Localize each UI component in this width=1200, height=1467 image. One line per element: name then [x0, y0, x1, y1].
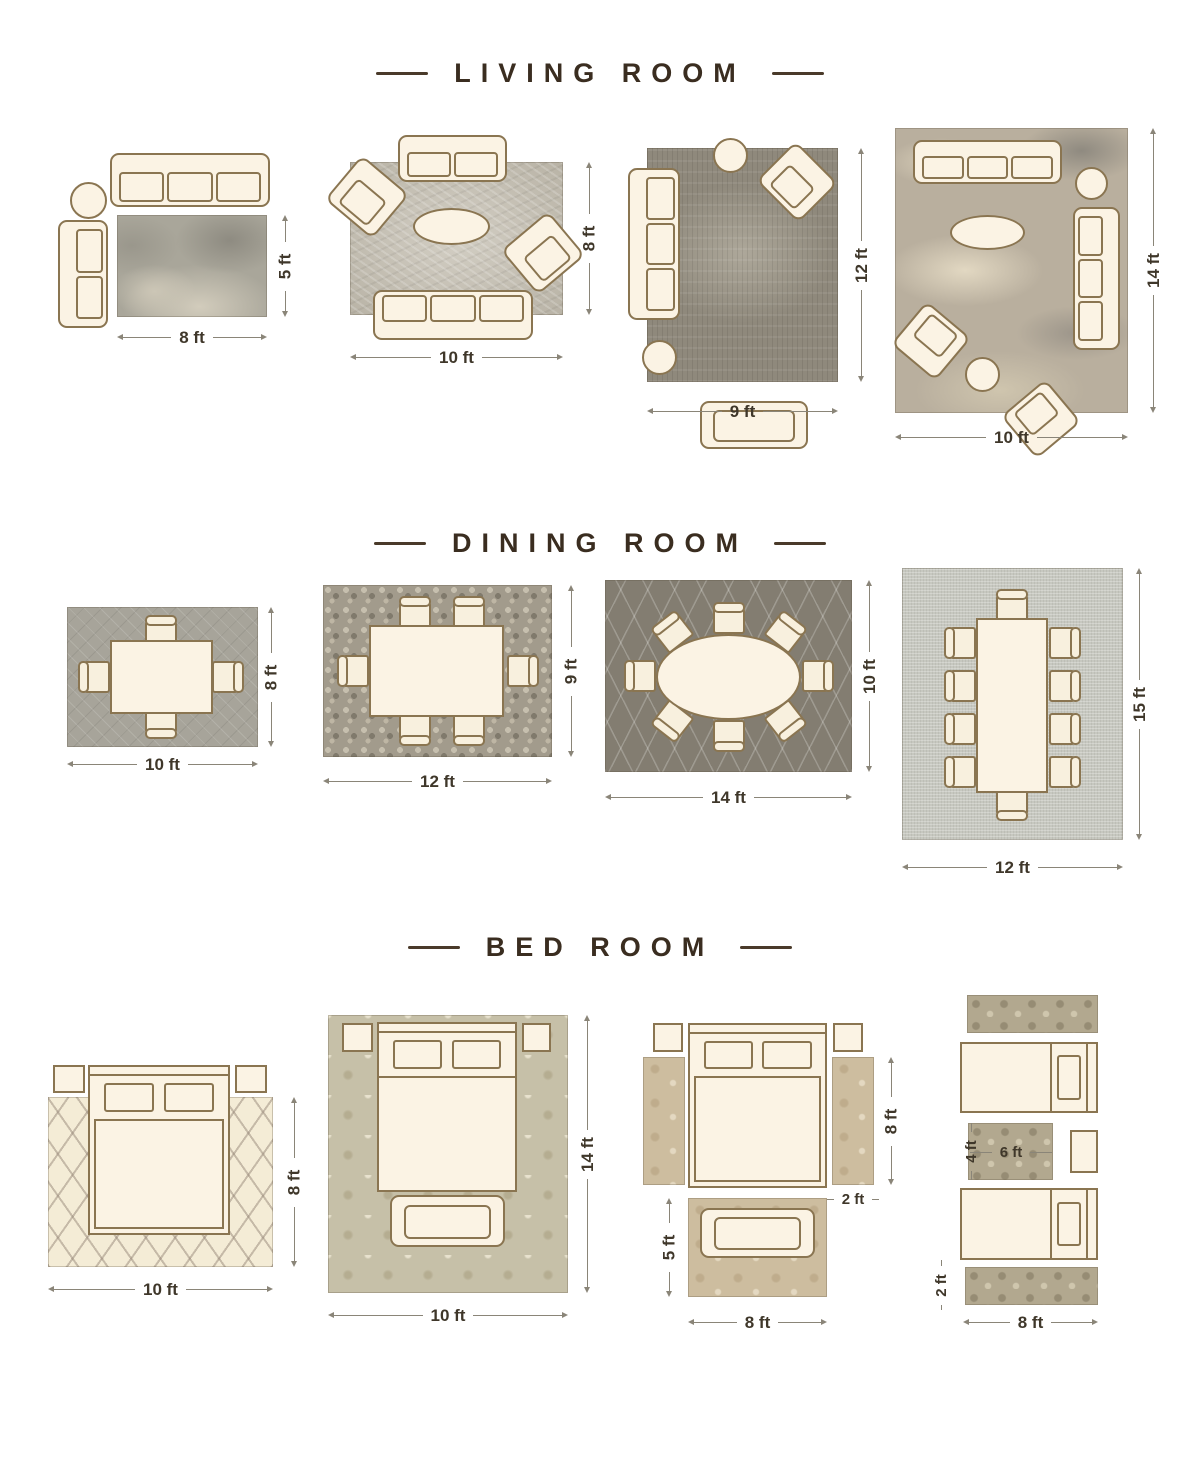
accent-rug-height-label: 5 ft: [661, 1235, 678, 1261]
runner-width-label: 2 ft: [834, 1192, 873, 1207]
dining-chair: [1049, 713, 1075, 745]
rug-height-dimension: 8 ft: [285, 1097, 303, 1267]
arrow-right-icon: [252, 761, 258, 767]
title-dash-left: [376, 72, 428, 75]
dining-room-layout-1: 8 ft 10 ft: [60, 595, 295, 785]
dining-table: [110, 640, 213, 714]
rug-width-label: 10 ft: [431, 349, 482, 366]
sofa-cushion: [382, 295, 427, 322]
nightstand: [653, 1023, 683, 1052]
rug-height-label: 12 ft: [853, 248, 870, 283]
sofa: [1073, 207, 1120, 350]
rug-height-dimension: 8 ft: [580, 162, 598, 315]
rug-width-label: 12 ft: [987, 859, 1038, 876]
dining-chair: [399, 714, 431, 740]
bed-blanket: [94, 1119, 224, 1229]
bench-cushion: [714, 1217, 801, 1250]
sofa: [913, 140, 1062, 184]
nightstand: [833, 1023, 863, 1052]
dining-chair: [950, 756, 976, 788]
headboard: [90, 1067, 228, 1076]
arrow-down-icon: [568, 751, 574, 757]
headboard: [1088, 1044, 1096, 1111]
runner-rug: [832, 1057, 874, 1185]
rug-height-dimension: 8 ft: [262, 607, 280, 747]
sofa-cushion: [479, 295, 524, 322]
arrow-right-icon: [832, 408, 838, 414]
nightstand: [53, 1065, 85, 1093]
arrow-right-icon: [261, 334, 267, 340]
sofa-cushion: [119, 172, 164, 202]
dining-chair: [802, 660, 828, 692]
rug-width-dimension: 9 ft: [647, 402, 838, 420]
rug-width-label: 14 ft: [703, 789, 754, 806]
bed-room-layout-1: 8 ft 10 ft: [40, 1060, 310, 1305]
armchair-seat: [337, 178, 387, 227]
arrow-down-icon: [268, 741, 274, 747]
dining-chair: [507, 655, 533, 687]
dining-chair: [1049, 670, 1075, 702]
sofa-back: [630, 170, 644, 318]
rug-width-label: 10 ft: [986, 429, 1037, 446]
rug-size-guide: LIVING ROOM 5 ft 8 f: [0, 0, 1200, 1467]
rug-width-label: 10 ft: [137, 756, 188, 773]
rug-width-dimension: 12 ft: [323, 772, 552, 790]
bed-room-layout-2: 14 ft 10 ft: [328, 1010, 603, 1325]
bed-room-layout-3: 8 ft 2 ft 5 ft 8 ft: [643, 1020, 908, 1335]
rug-height-label: 8 ft: [581, 226, 598, 252]
accent-rug-width-label: 6 ft: [992, 1145, 1031, 1160]
rug-height-label: 14 ft: [579, 1137, 596, 1172]
dining-room-layout-4: 15 ft 12 ft: [902, 565, 1162, 880]
coffee-table: [950, 215, 1025, 250]
headboard: [1088, 1190, 1096, 1258]
arrow-right-icon: [821, 1319, 827, 1325]
sofa-back: [915, 142, 1060, 154]
bed-blanket: [962, 1044, 1052, 1111]
bed-pillow: [104, 1083, 154, 1112]
bed-pillow: [393, 1040, 443, 1069]
twin-bed: [960, 1188, 1098, 1260]
armchair-seat: [523, 234, 573, 283]
side-table: [1075, 167, 1108, 200]
rug-width-label: 9 ft: [722, 403, 764, 420]
side-table: [70, 182, 107, 219]
rug-height-dimension: 14 ft: [578, 1015, 596, 1293]
sofa-cushion: [430, 295, 475, 322]
dining-chair: [1049, 756, 1075, 788]
rug-width-label: 8 ft: [171, 329, 213, 346]
runner-rug: [965, 1267, 1098, 1305]
headboard: [690, 1025, 825, 1034]
accent-rug-width-label: 8 ft: [737, 1314, 779, 1331]
title-dash-left: [374, 542, 426, 545]
nightstand: [342, 1023, 373, 1052]
side-table: [713, 138, 748, 173]
sofa: [110, 153, 270, 207]
dining-chair: [713, 608, 745, 634]
rug-height-label: 8 ft: [263, 664, 280, 690]
dining-chair: [453, 714, 485, 740]
dining-chair: [950, 670, 976, 702]
dining-chair: [713, 720, 745, 746]
loveseat: [58, 220, 108, 328]
sofa-cushion: [922, 156, 964, 179]
sofa-cushion: [1078, 259, 1103, 299]
sofa-back: [60, 222, 74, 326]
living-room-layout-1: 5 ft 8 ft: [50, 130, 310, 370]
arrow-right-icon: [562, 1312, 568, 1318]
dining-table: [369, 625, 504, 717]
runner-width-dimension: 2 ft: [932, 1260, 950, 1310]
rug-height-label: 15 ft: [1131, 687, 1148, 722]
runner-rug: [967, 995, 1098, 1033]
loveseat: [398, 135, 507, 182]
runner-width-label: 2 ft: [934, 1274, 949, 1297]
rug-height-dimension: 10 ft: [860, 580, 878, 772]
bed-blanket: [694, 1076, 821, 1182]
rug-height-dimension: 5 ft: [276, 215, 294, 317]
nightstand: [522, 1023, 551, 1052]
title-dash-right: [772, 72, 824, 75]
sofa-cushion: [1011, 156, 1053, 179]
sofa-cushion: [646, 223, 675, 266]
sofa-cushion: [646, 268, 675, 311]
arrow-right-icon: [546, 778, 552, 784]
bed-room-section-title: BED ROOM: [0, 932, 1200, 963]
coffee-table: [413, 208, 490, 245]
arrow-down-icon: [282, 311, 288, 317]
runner-length-dimension: 8 ft: [882, 1057, 900, 1185]
rug-width-label: 10 ft: [135, 1281, 186, 1298]
bed-blanket: [962, 1190, 1052, 1258]
dining-chair: [630, 660, 656, 692]
rug-width-dimension: 10 ft: [67, 755, 258, 773]
nightstand: [1070, 1130, 1098, 1173]
dining-table: [976, 618, 1048, 793]
rug-height-dimension: 9 ft: [562, 585, 580, 757]
sofa-cushion: [454, 152, 498, 177]
sofa-cushion: [76, 229, 103, 273]
runner-width-dimension: 2 ft: [827, 1190, 879, 1208]
arrow-down-icon: [586, 309, 592, 315]
arrow-right-icon: [1092, 1319, 1098, 1325]
rug-height-label: 10 ft: [861, 659, 878, 694]
runner-rug: [643, 1057, 685, 1185]
rug-width-dimension: 10 ft: [350, 348, 563, 366]
runner-length-dimension: 8 ft: [963, 1313, 1098, 1331]
arrow-down-icon: [866, 766, 872, 772]
sofa-back: [1105, 209, 1118, 348]
rug-width-dimension: 8 ft: [117, 328, 267, 346]
sofa: [628, 168, 680, 320]
arrow-down-icon: [1136, 834, 1142, 840]
section-title-text: DINING ROOM: [452, 528, 748, 559]
bed-pillow: [762, 1041, 811, 1069]
rug-height-dimension: 15 ft: [1130, 568, 1148, 840]
accent-rug-height-dimension: 5 ft: [660, 1198, 678, 1297]
arrow-right-icon: [1117, 864, 1123, 870]
runner-length-label: 8 ft: [883, 1108, 900, 1134]
rug-height-label: 9 ft: [563, 658, 580, 684]
arrow-down-icon: [1150, 407, 1156, 413]
rug-width-dimension: 10 ft: [328, 1306, 568, 1324]
section-title-text: LIVING ROOM: [454, 58, 746, 89]
headboard: [379, 1024, 515, 1033]
living-room-layout-4: 14 ft 10 ft: [885, 110, 1180, 455]
title-dash-right: [740, 946, 792, 949]
bench: [390, 1195, 505, 1247]
runner-length-label: 8 ft: [1010, 1314, 1052, 1331]
dining-chair: [1049, 627, 1075, 659]
arrow-down-icon: [291, 1261, 297, 1267]
arrow-right-icon: [557, 354, 563, 360]
sofa-cushion: [967, 156, 1009, 179]
bed: [88, 1065, 230, 1235]
bed-pillow: [452, 1040, 502, 1069]
arrow-right-icon: [846, 794, 852, 800]
dining-chair: [950, 713, 976, 745]
bed-pillow-area: [1052, 1190, 1088, 1258]
area-rug: [117, 215, 267, 317]
rug-height-label: 8 ft: [286, 1169, 303, 1195]
bed-pillow: [1057, 1055, 1082, 1099]
bed-room-layout-4: 4 ft 6 ft 2 ft 8 ft: [930, 985, 1185, 1335]
accent-rug-width-dimension: 8 ft: [688, 1313, 827, 1331]
rug-height-label: 14 ft: [1145, 253, 1162, 288]
arrow-down-icon: [666, 1291, 672, 1297]
sofa: [373, 290, 533, 340]
dining-chair: [84, 661, 110, 693]
rug-width-label: 12 ft: [412, 773, 463, 790]
rug-height-dimension: 14 ft: [1144, 128, 1162, 413]
bench: [700, 1208, 815, 1258]
bed-pillow: [704, 1041, 753, 1069]
sofa-cushion: [76, 276, 103, 320]
rug-height-label: 5 ft: [277, 253, 294, 279]
rug-height-dimension: 12 ft: [852, 148, 870, 382]
sofa-cushion: [407, 152, 451, 177]
sofa-cushion: [1078, 301, 1103, 341]
living-room-layout-3: 12 ft 9 ft: [615, 130, 885, 430]
bench-cushion: [404, 1205, 491, 1240]
sofa-cushion: [1078, 216, 1103, 256]
dining-room-layout-2: 9 ft 12 ft: [323, 580, 585, 795]
arrow-down-icon: [888, 1179, 894, 1185]
side-table: [642, 340, 677, 375]
sofa-cushion: [646, 177, 675, 220]
dining-chair: [950, 627, 976, 659]
sofa-back: [400, 137, 505, 150]
nightstand: [235, 1065, 267, 1093]
rug-width-dimension: 10 ft: [895, 428, 1128, 446]
rug-width-dimension: 12 ft: [902, 858, 1123, 876]
arrow-right-icon: [267, 1286, 273, 1292]
rug-width-dimension: 10 ft: [48, 1280, 273, 1298]
dining-room-section-title: DINING ROOM: [0, 528, 1200, 559]
dining-room-layout-3: 10 ft 14 ft: [600, 578, 890, 808]
bed: [377, 1022, 517, 1192]
arrow-down-icon: [858, 376, 864, 382]
bed-blanket: [379, 1076, 515, 1190]
rug-width-dimension: 14 ft: [605, 788, 852, 806]
bed: [688, 1023, 827, 1188]
title-dash-right: [774, 542, 826, 545]
accent-rug-width-dimension: 6 ft: [970, 1143, 1052, 1161]
living-room-section-title: LIVING ROOM: [0, 58, 1200, 89]
title-dash-left: [408, 946, 460, 949]
dining-table: [656, 634, 801, 720]
bed-pillow: [1057, 1202, 1082, 1247]
twin-bed: [960, 1042, 1098, 1113]
rug-width-label: 10 ft: [423, 1307, 474, 1324]
dining-chair: [212, 661, 238, 693]
sofa-back: [375, 324, 531, 338]
arrow-down-icon: [584, 1287, 590, 1293]
dining-chair: [343, 655, 369, 687]
section-title-text: BED ROOM: [486, 932, 715, 963]
sofa-back: [112, 155, 268, 170]
sofa-cushion: [167, 172, 212, 202]
bed-pillow-area: [1052, 1044, 1088, 1111]
sofa-cushion: [216, 172, 261, 202]
living-room-layout-2: 8 ft 10 ft: [330, 120, 610, 380]
side-table: [965, 357, 1000, 392]
bed-pillow: [164, 1083, 214, 1112]
arrow-right-icon: [1122, 434, 1128, 440]
